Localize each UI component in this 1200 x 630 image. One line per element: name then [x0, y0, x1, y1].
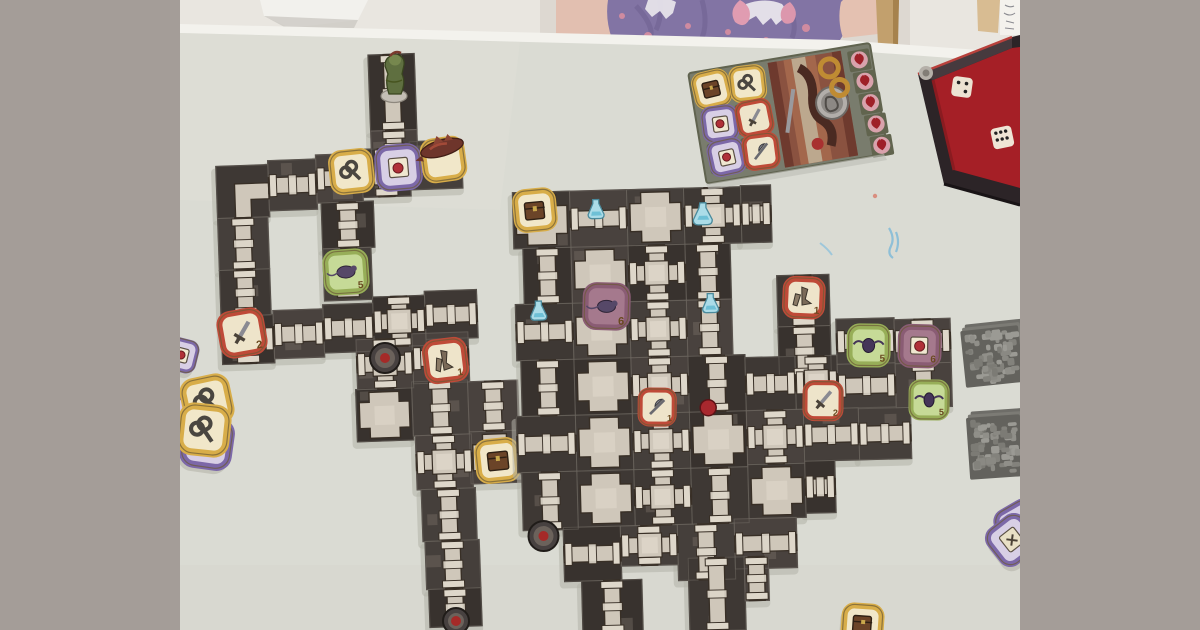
svg-text:1: 1: [814, 306, 820, 317]
svg-text:6: 6: [618, 316, 624, 328]
svg-text:5: 5: [879, 354, 885, 365]
svg-text:2: 2: [833, 408, 838, 418]
svg-text:1: 1: [667, 413, 672, 423]
svg-text:5: 5: [939, 407, 944, 417]
svg-text:6: 6: [930, 354, 936, 365]
